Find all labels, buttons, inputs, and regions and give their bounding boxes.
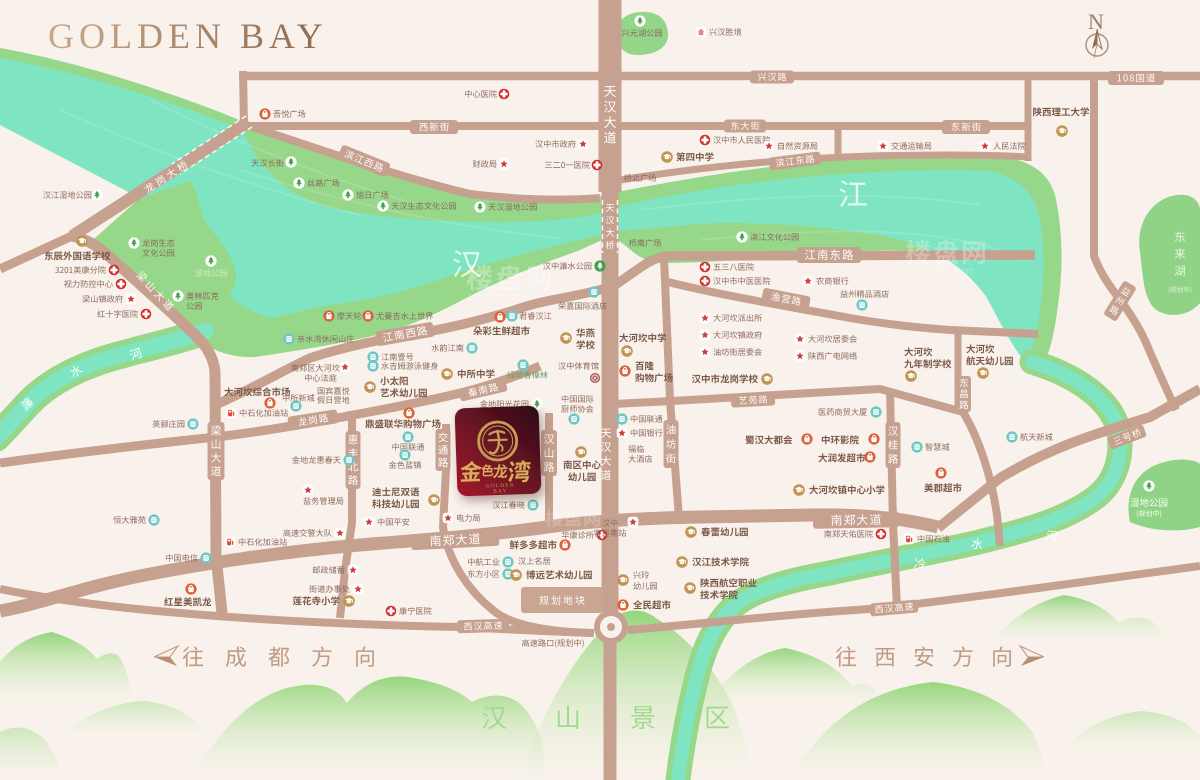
- svg-text:BAY: BAY: [493, 488, 507, 494]
- svg-text:LouPan.com: LouPan.com: [918, 266, 974, 277]
- svg-text:N: N: [1088, 9, 1104, 34]
- svg-text:LouPan.com: LouPan.com: [468, 291, 530, 303]
- svg-text:GOLDEN BAY: GOLDEN BAY: [48, 16, 328, 56]
